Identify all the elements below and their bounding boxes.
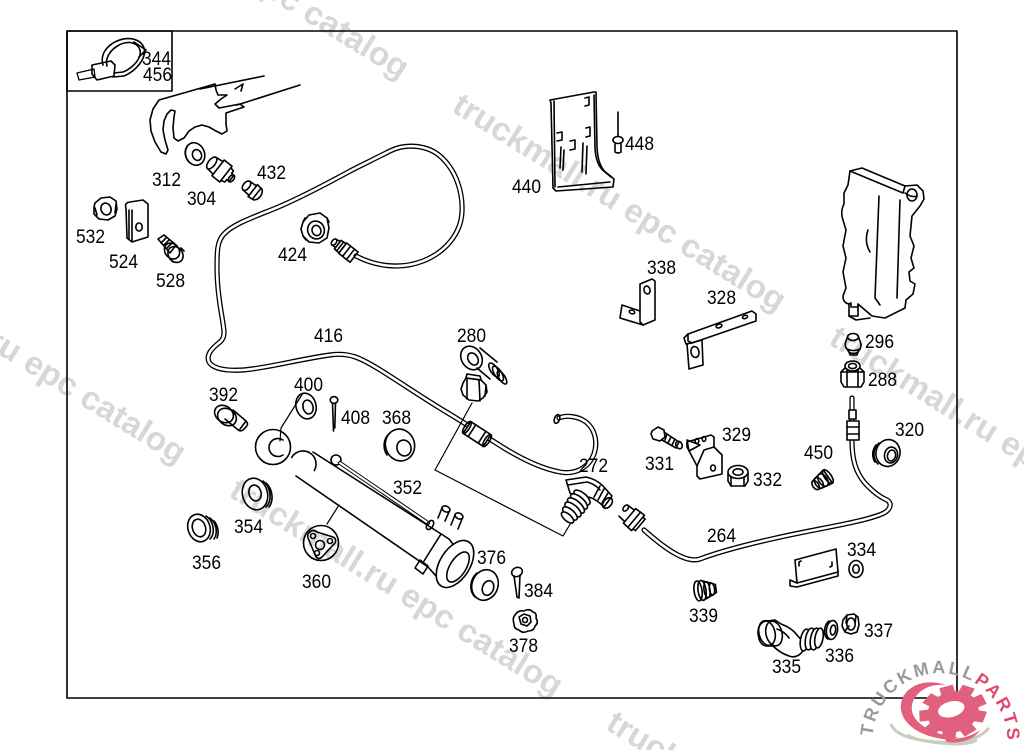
svg-text:331: 331 — [645, 454, 674, 475]
svg-text:328: 328 — [707, 288, 736, 309]
svg-text:378: 378 — [509, 636, 538, 657]
svg-text:360: 360 — [302, 572, 331, 593]
svg-text:336: 336 — [825, 646, 854, 667]
svg-text:312: 312 — [152, 170, 181, 191]
svg-text:338: 338 — [647, 258, 676, 279]
svg-text:424: 424 — [278, 245, 307, 266]
svg-text:334: 334 — [847, 540, 876, 561]
svg-text:532: 532 — [76, 227, 105, 248]
svg-text:335: 335 — [772, 657, 801, 678]
svg-text:332: 332 — [753, 470, 782, 491]
svg-text:450: 450 — [804, 443, 833, 464]
svg-text:384: 384 — [524, 581, 553, 602]
svg-text:356: 356 — [192, 553, 221, 574]
svg-text:280: 280 — [457, 326, 486, 347]
svg-text:392: 392 — [209, 385, 238, 406]
svg-text:528: 528 — [156, 271, 185, 292]
svg-text:304: 304 — [187, 189, 216, 210]
svg-text:272: 272 — [579, 456, 608, 477]
svg-text:400: 400 — [294, 375, 323, 396]
svg-text:264: 264 — [707, 526, 736, 547]
svg-text:320: 320 — [895, 420, 924, 441]
svg-text:456: 456 — [143, 65, 172, 86]
svg-text:376: 376 — [477, 548, 506, 569]
svg-text:416: 416 — [314, 326, 343, 347]
svg-text:329: 329 — [722, 425, 751, 446]
svg-text:368: 368 — [382, 408, 411, 429]
svg-text:354: 354 — [234, 517, 263, 538]
svg-text:337: 337 — [864, 621, 893, 642]
svg-text:288: 288 — [868, 370, 897, 391]
svg-text:432: 432 — [257, 163, 286, 184]
svg-text:296: 296 — [865, 332, 894, 353]
svg-text:448: 448 — [625, 134, 654, 155]
svg-text:440: 440 — [512, 177, 541, 198]
svg-text:339: 339 — [689, 606, 718, 627]
svg-text:408: 408 — [341, 408, 370, 429]
svg-text:524: 524 — [109, 252, 138, 273]
svg-text:352: 352 — [393, 478, 422, 499]
